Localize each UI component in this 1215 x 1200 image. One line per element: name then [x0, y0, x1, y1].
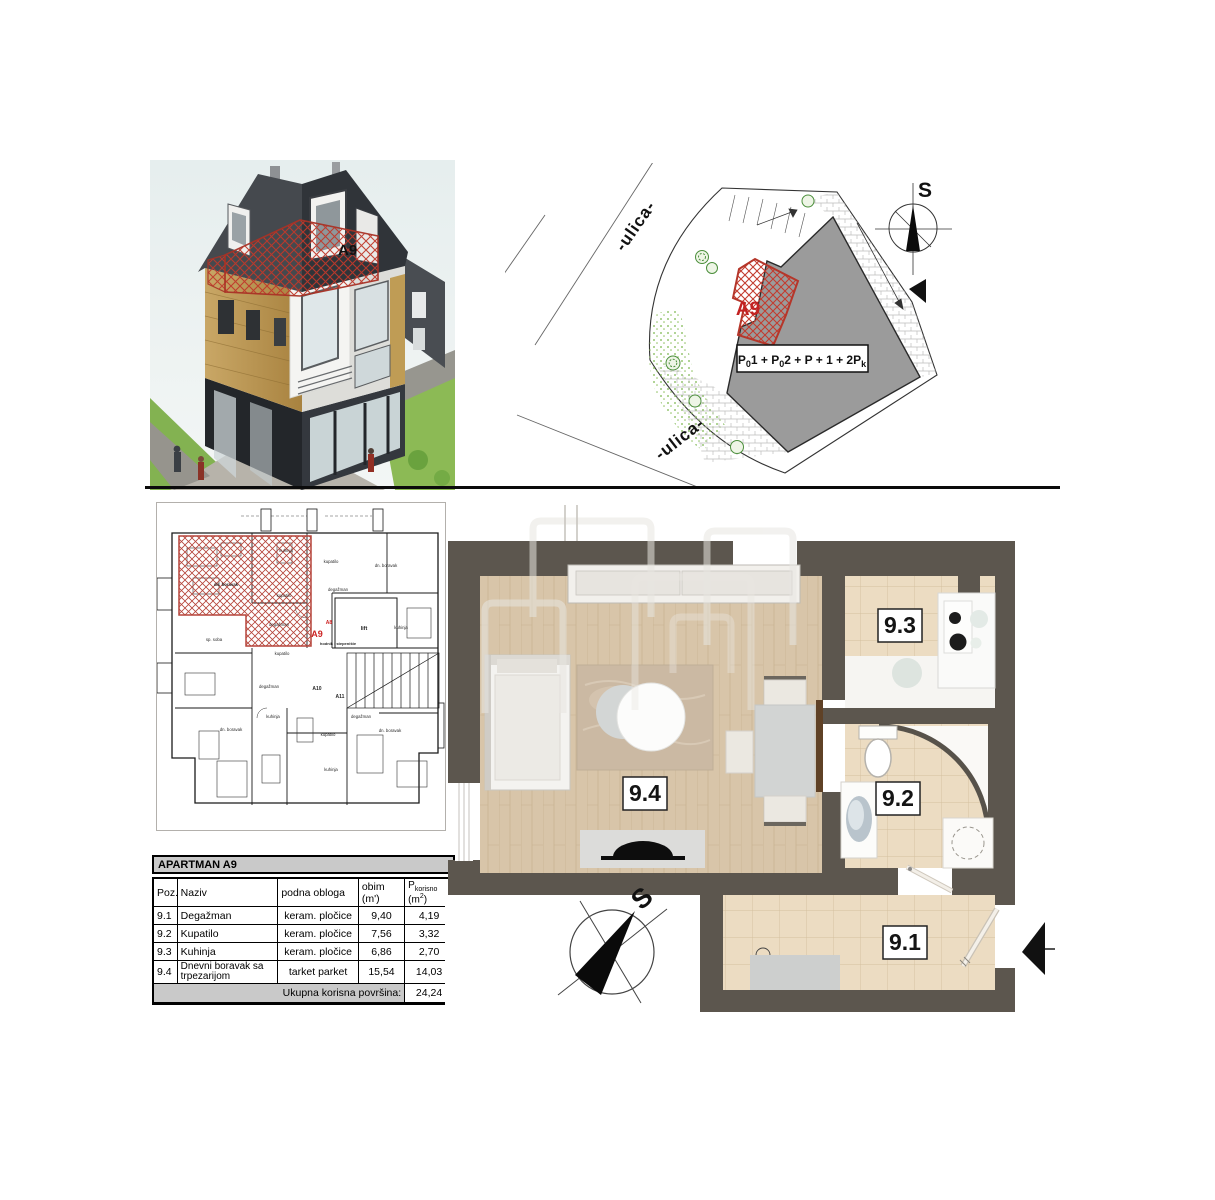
svg-text:degažman: degažman: [269, 622, 290, 627]
apartment-a9-label-overview: A9: [311, 629, 323, 639]
apartment-a9-label-site: A9: [736, 299, 760, 320]
apartment-datasheet: A9: [0, 0, 1215, 1200]
col-obim: obim (m'): [358, 878, 404, 907]
svg-text:A11: A11: [336, 694, 345, 700]
room-label-9-3: 9.3: [884, 612, 916, 638]
section-divider: [145, 486, 1060, 489]
col-obloga: podna obloga: [278, 878, 359, 907]
floor-plan-overview: kuhinja kupatilo dn. boravak dn. boravak…: [156, 502, 446, 831]
svg-text:dn. boravak: dn. boravak: [214, 582, 239, 587]
total-label: Ukupna korisna površina:: [153, 984, 405, 1004]
svg-text:A8: A8: [326, 620, 333, 626]
svg-text:dn. boravak: dn. boravak: [379, 728, 402, 733]
room-label-9-2: 9.2: [882, 785, 914, 811]
col-naziv: Naziv: [177, 878, 278, 907]
svg-text:sp. soba: sp. soba: [206, 637, 223, 642]
table-row: 9.4Dnevni boravak sa trpezarijom tarket …: [153, 961, 454, 984]
entry-door-opening: [995, 905, 1015, 968]
cooktop-burner: [949, 612, 961, 624]
entrance-wedge: [909, 279, 926, 303]
table-header-row: Poz. Naziv podna obloga obim (m') Pkoris…: [153, 878, 454, 907]
table-row: 9.2Kupatilo keram. pločice7,56 3,32: [153, 925, 454, 943]
main-floor-plan: 9.4 9.3 9.2 9.1 S: [445, 505, 1055, 1015]
svg-text:kuhinja: kuhinja: [266, 714, 280, 719]
appliance-pad: [943, 818, 993, 868]
door-to-bathroom: [816, 700, 823, 792]
tv-stand: [580, 830, 705, 868]
room-label-9-1: 9.1: [889, 929, 921, 955]
svg-text:kuhinja: kuhinja: [394, 625, 408, 630]
compass-label-site: S: [918, 179, 932, 202]
svg-text:kupatilo: kupatilo: [321, 732, 336, 737]
coffee-table-round: [617, 683, 685, 751]
svg-text:degažman: degažman: [259, 684, 280, 689]
svg-text:degažman: degažman: [351, 714, 372, 719]
svg-text:kupatilo: kupatilo: [275, 651, 290, 656]
svg-text:kuhinja: kuhinja: [324, 767, 338, 772]
svg-text:dn. boravak: dn. boravak: [220, 727, 243, 732]
bathroom-door-leaf: [907, 867, 952, 891]
table-row: 9.1Degažman keram. pločice9,40 4,19: [153, 907, 454, 925]
building-3d-render: A9: [150, 160, 455, 490]
street-label-top: -ulica-: [611, 197, 659, 255]
wardrobe-cabinet: [750, 955, 840, 990]
svg-text:dn. boravak: dn. boravak: [375, 563, 398, 568]
svg-text:kupatilo: kupatilo: [277, 593, 292, 598]
sofa-bed: [485, 655, 570, 790]
compass-north-icon: [875, 183, 952, 275]
room-label-9-4: 9.4: [629, 780, 661, 806]
svg-text:kupatilo: kupatilo: [324, 559, 339, 564]
svg-text:kuhinja: kuhinja: [279, 548, 293, 553]
table-title: APARTMAN A9: [152, 855, 455, 874]
apartment-a9-label-3d: A9: [338, 242, 357, 259]
floors-formula: P01 + P02 + P + 1 + 2Pk: [738, 353, 867, 369]
svg-text:degažman: degažman: [328, 587, 349, 592]
entry-arrow-icon: [1022, 922, 1055, 975]
apartment-table: APARTMAN A9 Poz. Naziv podna obloga obim…: [152, 855, 455, 1005]
tv-icon: [601, 856, 685, 860]
svg-text:hodnik i stepenište: hodnik i stepenište: [320, 641, 357, 646]
dining-table: [755, 705, 815, 797]
svg-text:lift: lift: [361, 626, 368, 632]
toilet: [865, 739, 891, 777]
table-row: 9.3Kuhinja keram. pločice6,86 2,70: [153, 943, 454, 961]
svg-text:A10: A10: [312, 686, 321, 692]
table-footer-row: Ukupna korisna površina: 24,24: [153, 984, 454, 1004]
site-plan: A9 P01 + P02 + P + 1 + 2Pk S -ulica- -ul…: [505, 163, 1065, 488]
cooktop-burner: [950, 634, 967, 651]
kitchen-sink: [970, 610, 988, 628]
col-poz: Poz.: [153, 878, 177, 907]
